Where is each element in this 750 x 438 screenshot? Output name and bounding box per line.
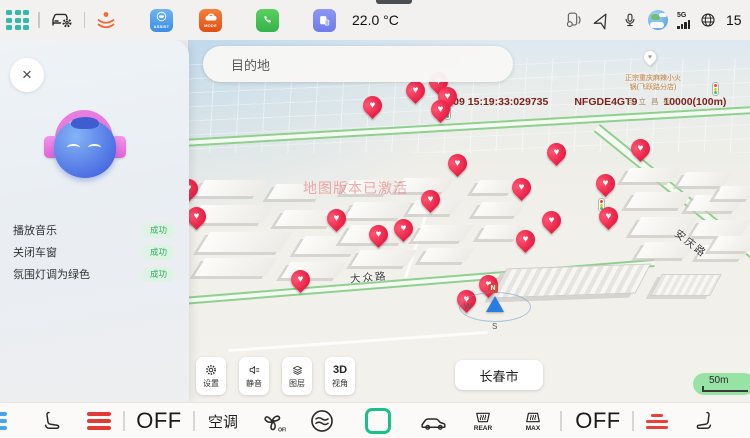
fan-icon: OFF <box>259 408 286 435</box>
car-settings-icon[interactable] <box>49 8 75 32</box>
map-controls: 设置 静音 图层 3D <box>196 357 355 395</box>
heart-pin[interactable]: ♥ <box>390 215 417 242</box>
seat-heat-level-right[interactable] <box>644 403 670 438</box>
status-badge: 成功 <box>142 267 175 282</box>
list-item: 关闭车窗 成功 <box>13 244 175 260</box>
heart-pin[interactable]: ♥ <box>543 139 570 166</box>
heart-pin[interactable]: ♥ <box>323 205 350 232</box>
heart-pin[interactable]: ♥ <box>508 174 535 201</box>
divider <box>84 12 86 28</box>
fan-off-text: OFF <box>278 427 286 433</box>
status-badge: 成功 <box>142 223 175 238</box>
avatar-eye-right <box>88 144 101 151</box>
seat-right-button[interactable] <box>690 403 716 438</box>
device-volume-icon[interactable] <box>562 9 584 31</box>
speaker-icon <box>247 363 262 377</box>
heart-pin[interactable]: ♥ <box>592 170 619 197</box>
globe-icon[interactable] <box>699 11 717 29</box>
rear-defrost-button[interactable]: REAR <box>468 403 498 438</box>
airflow-icon <box>308 407 336 435</box>
map-3d-view-button[interactable]: 3D 视角 <box>325 357 355 395</box>
close-button[interactable]: × <box>10 58 44 92</box>
recirculation-active-icon <box>365 408 391 434</box>
map-mute-button[interactable]: 静音 <box>239 357 269 395</box>
tablet-app-icon[interactable] <box>313 9 336 32</box>
assist-app-icon[interactable]: ASSIST <box>150 9 173 32</box>
destination-search-input[interactable]: 目的地 <box>203 46 513 82</box>
divider <box>123 411 125 431</box>
phone-app-icon[interactable] <box>256 9 279 32</box>
max-defrost-button[interactable]: MAX <box>518 403 548 438</box>
location-arrow-icon[interactable] <box>593 11 612 30</box>
climate-bottom-bar: OFF 空调 OFF <box>0 402 750 438</box>
command-list: 播放音乐 成功 关闭车窗 成功 氛围灯调为绿色 成功 <box>13 222 175 288</box>
list-item: 播放音乐 成功 <box>13 222 175 238</box>
rear-label: REAR <box>474 426 492 433</box>
heart-pin[interactable]: ♥ <box>512 226 539 253</box>
vehicle-position-arrow[interactable] <box>486 296 504 312</box>
mode-label: MODE <box>204 23 217 28</box>
compass-north-label: N <box>488 284 498 293</box>
divider <box>193 411 195 431</box>
content-area: 地图版本已激活 12-09 15:19:33:029735 NFGDE4GT9 … <box>0 40 750 402</box>
rear-defrost-icon <box>472 410 494 425</box>
network-type: 5G <box>677 12 686 19</box>
edge-menu-icon[interactable] <box>0 403 8 438</box>
status-badge: 成功 <box>142 245 175 260</box>
map-view-label: 视角 <box>332 378 348 389</box>
heart-pin[interactable]: ♥ <box>188 175 201 202</box>
divider <box>560 411 562 431</box>
assist-label: ASSIST <box>154 24 170 29</box>
temperature-display[interactable]: 22.0 °C <box>352 0 399 40</box>
avatar-eye-left <box>67 144 80 151</box>
map-layers-button[interactable]: 图层 <box>282 357 312 395</box>
seat-massage-icon[interactable] <box>94 8 118 32</box>
mode-app-icon[interactable]: MODE <box>199 9 222 32</box>
heart-pin[interactable]: ♥ <box>595 203 622 230</box>
fan-button[interactable]: OFF <box>256 403 288 438</box>
recirculation-button[interactable] <box>363 403 393 438</box>
status-bar-right: 5G 15 <box>562 0 742 40</box>
app-grid-icon[interactable] <box>6 10 29 30</box>
divider <box>38 12 40 28</box>
assistant-avatar <box>45 110 125 194</box>
heart-pin[interactable]: ♥ <box>365 221 392 248</box>
heart-pin[interactable]: ♥ <box>427 96 454 123</box>
compass-west-label: W <box>464 302 472 311</box>
climate-off-left[interactable]: OFF <box>135 403 183 438</box>
command-text: 关闭车窗 <box>13 244 57 260</box>
map-scale-bar <box>702 390 748 392</box>
avatar-face <box>54 120 116 178</box>
heart-pin[interactable]: ♥ <box>444 150 471 177</box>
car-infotainment-screen: ASSIST MODE 22.0 °C <box>0 0 750 438</box>
heart-pin[interactable]: ♥ <box>417 186 444 213</box>
heart-pin[interactable]: ♥ <box>359 92 386 119</box>
airflow-mode-button[interactable] <box>306 403 338 438</box>
car-side-icon <box>419 410 449 432</box>
heart-pin[interactable]: ♥ <box>538 207 565 234</box>
clock: 15 <box>726 12 742 28</box>
cabin-car-button[interactable] <box>418 403 450 438</box>
map-pins-layer: ♥♥♥♥♥♥♥♥♥♥♥♥♥♥♥♥♥♥♥♥♥♥ <box>188 40 750 402</box>
status-bar: ASSIST MODE 22.0 °C <box>0 0 750 40</box>
climate-off-right[interactable]: OFF <box>574 403 622 438</box>
map-settings-button[interactable]: 设置 <box>196 357 226 395</box>
command-text: 播放音乐 <box>13 222 57 238</box>
divider <box>632 411 634 431</box>
heart-pin[interactable]: ♥ <box>627 135 654 162</box>
seat-icon <box>691 408 715 434</box>
compass-south-label: S <box>492 322 497 331</box>
command-text: 氛围灯调为绿色 <box>13 266 90 282</box>
list-item: 氛围灯调为绿色 成功 <box>13 266 175 282</box>
heart-pin[interactable]: ♥ <box>188 203 209 230</box>
signal-icon: 5G <box>677 12 690 29</box>
city-button[interactable]: 长春市 <box>455 360 543 390</box>
status-bar-left: ASSIST MODE <box>6 0 336 40</box>
map-settings-label: 设置 <box>203 378 219 389</box>
weather-icon[interactable] <box>648 10 668 30</box>
3d-icon: 3D <box>333 364 347 377</box>
max-label: MAX <box>526 426 540 433</box>
map-view[interactable]: 地图版本已激活 12-09 15:19:33:029735 NFGDE4GT9 … <box>188 40 750 402</box>
layers-icon <box>290 363 305 377</box>
microphone-icon[interactable] <box>621 11 639 30</box>
seat-icon <box>41 408 65 434</box>
map-mute-label: 静音 <box>246 378 262 389</box>
front-defrost-icon <box>522 410 544 425</box>
ac-label[interactable]: 空调 <box>205 403 241 438</box>
seat-left-button[interactable] <box>40 403 66 438</box>
gear-icon <box>204 363 218 377</box>
voice-assistant-panel: × 播放音乐 成功 关闭车窗 成功 <box>0 40 189 402</box>
map-layers-label: 图层 <box>289 378 305 389</box>
heart-pin[interactable]: ♥ <box>287 266 314 293</box>
seat-heat-level-left[interactable] <box>86 403 112 438</box>
